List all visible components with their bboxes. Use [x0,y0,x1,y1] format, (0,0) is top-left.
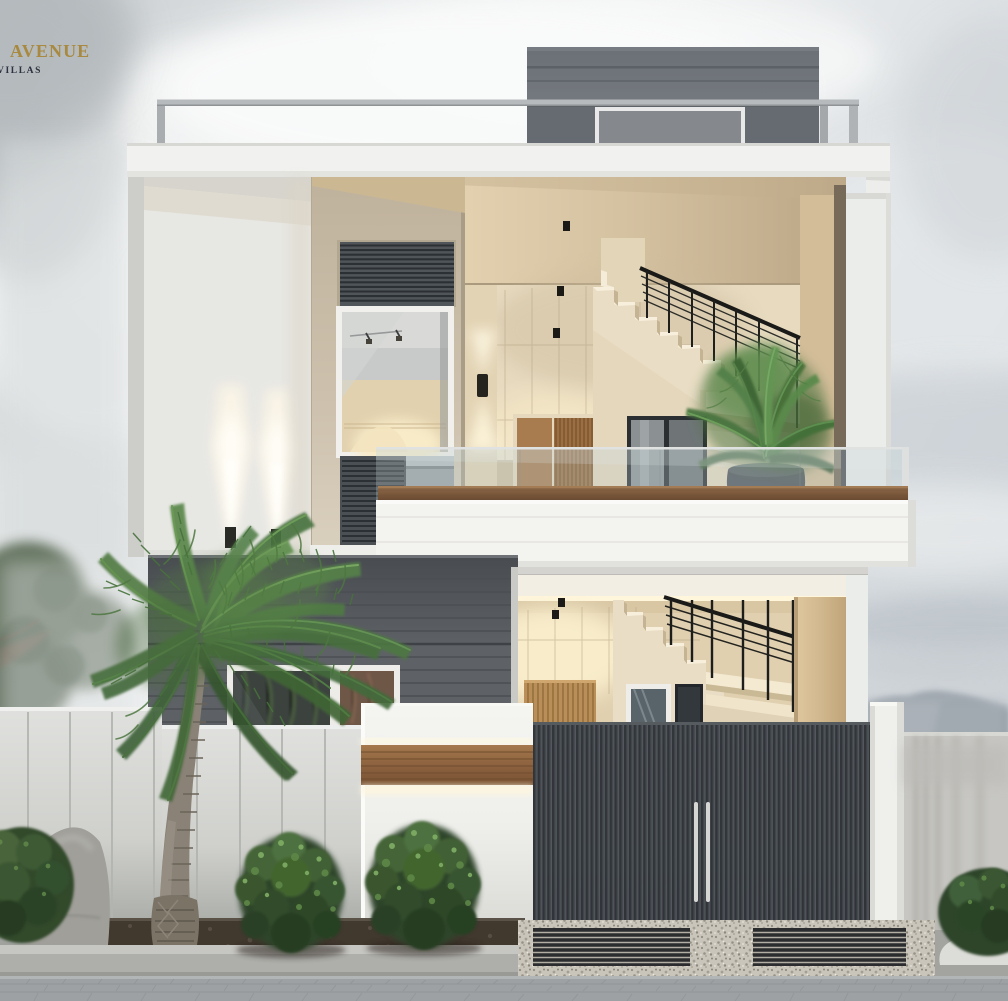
svg-text:AVENUE: AVENUE [10,41,90,61]
svg-text:VILLAS: VILLAS [0,66,42,76]
